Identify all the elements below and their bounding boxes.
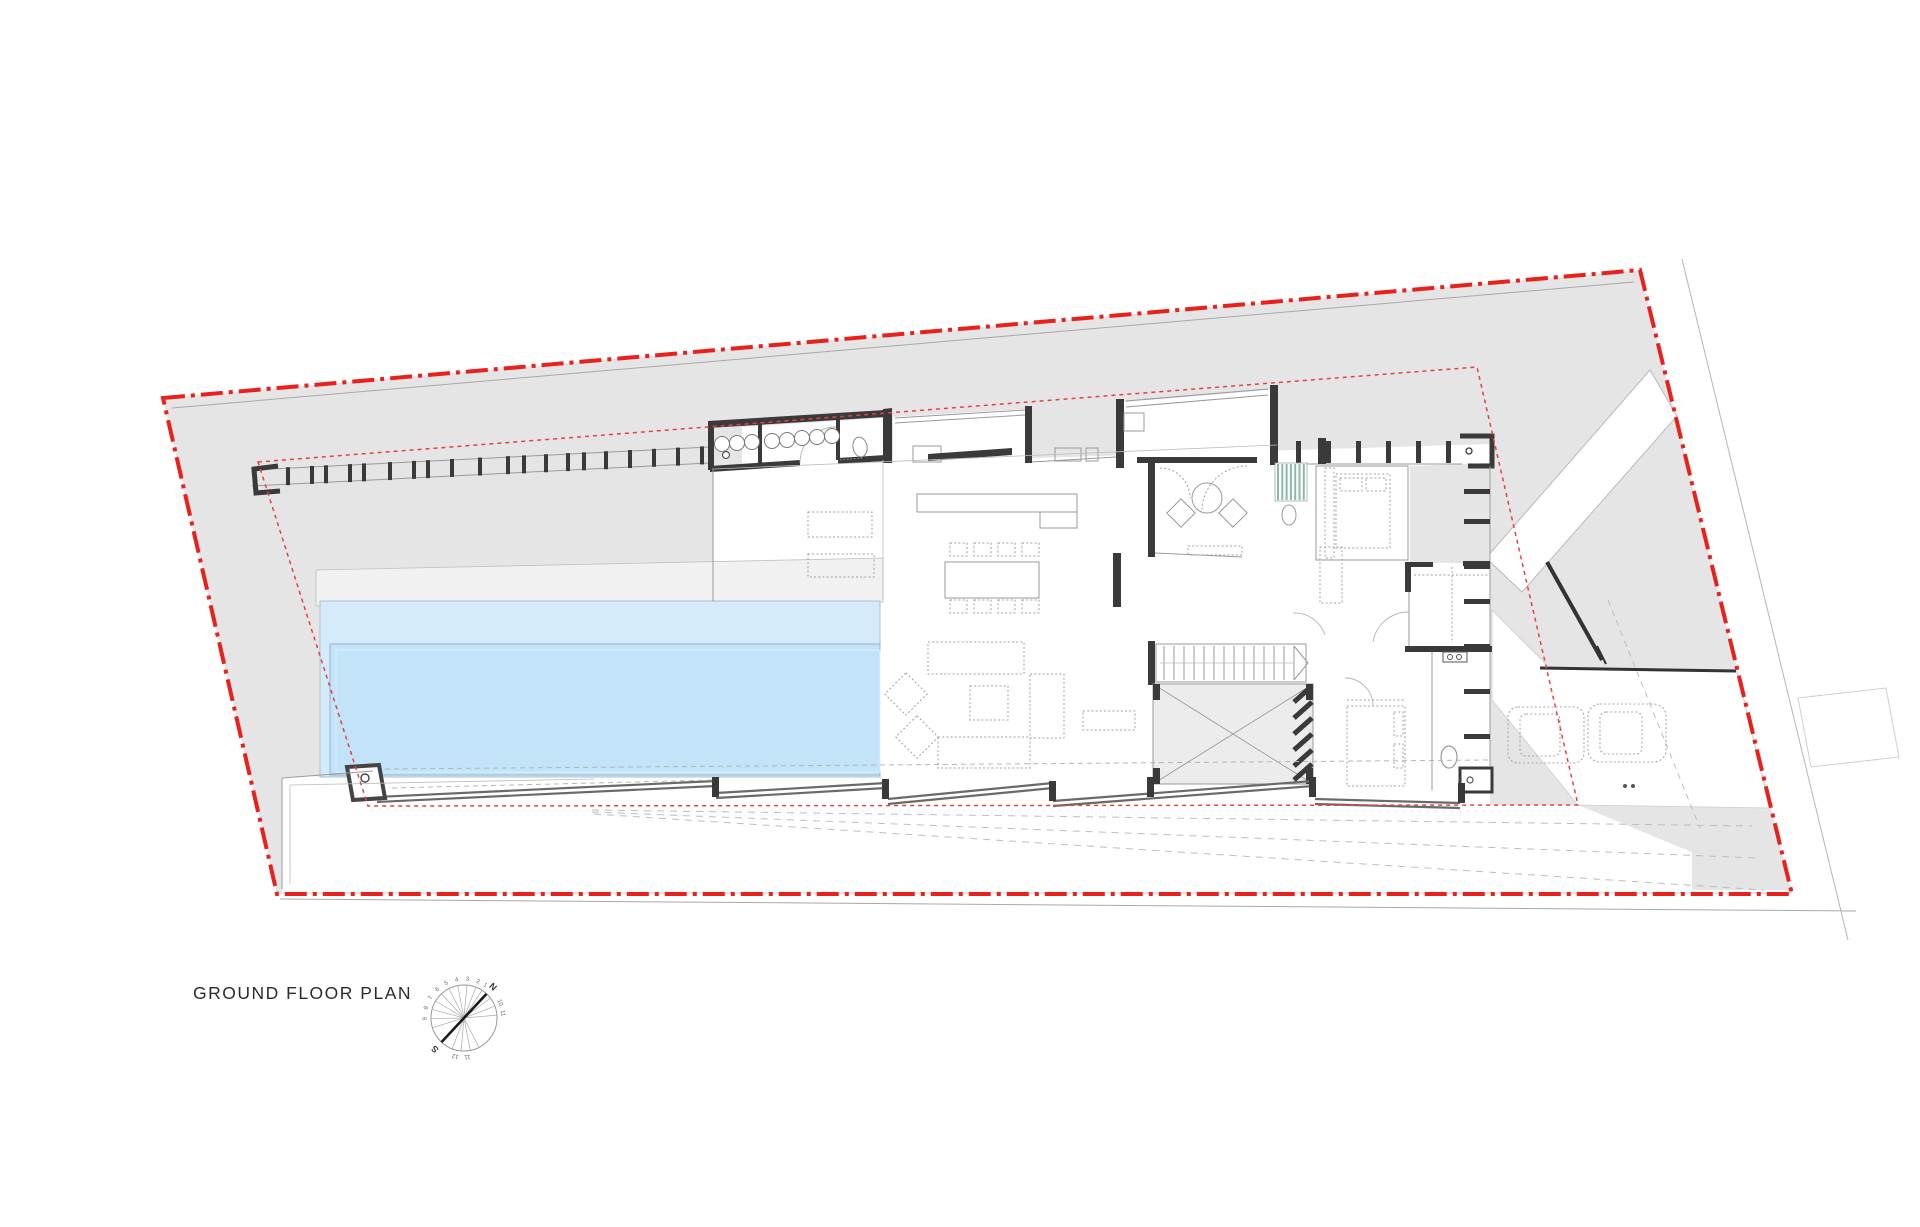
entry-fin [1386,441,1391,463]
facade-post-2 [882,779,889,799]
compass-spoke [431,1018,464,1019]
pool-main-basin [330,644,880,775]
neighbour-plot-outline [1798,688,1899,767]
fence-post [652,449,656,467]
fence-gate-pivot [723,452,730,459]
east-fin [1464,519,1490,524]
fence-post [676,448,680,466]
fence-post [522,455,526,473]
compass-spoke [458,986,464,1018]
service-circle-fixture [715,437,730,452]
plan-title: GROUND FLOOR PLAN [193,983,412,1003]
compass-hour-label: 8 [424,1005,431,1010]
compass-spoke [461,1018,464,1051]
compass-hour-label: 4 [454,977,459,984]
compass-spoke [441,994,464,1018]
hall-post [1405,562,1411,592]
kitchen-east-post [1025,406,1032,463]
compass-cardinal-label: N [487,981,499,993]
fence-post [544,454,548,472]
compass-hour-label: 6 [435,986,442,993]
pool-corner-wall [347,765,385,800]
fence-post [582,452,586,470]
compass-hour-label: 2 [475,979,481,986]
corridor-wall [1113,553,1121,607]
gate-dot-1 [1623,784,1627,788]
east-fin [1464,689,1490,694]
green-wall [1275,463,1307,501]
compass-spoke [464,1018,479,1047]
service-circle-fixture [765,434,780,449]
compass-hour-label: 11 [463,1053,470,1060]
gate-dot-2 [1631,784,1635,788]
service-circle-fixture [780,433,795,448]
fence-post [388,462,392,480]
entry-fin [1416,441,1421,463]
courtyard-lintel-1 [1408,562,1433,567]
fence-post [628,450,632,468]
swimming-pool [320,601,880,777]
entry-fin [1296,441,1301,463]
compass-spoke [464,1015,497,1018]
service-circle-fixture [745,435,760,450]
master-north-wall [1405,646,1492,652]
service-circle-fixture [810,430,825,445]
east-fin [1464,599,1490,604]
compass-hour-label: 9 [423,1016,429,1020]
compass-hour-label: 10 [495,999,503,1008]
fence-post [412,461,416,479]
service-circle-fixture [795,431,810,446]
compass-hour-label: 12 [451,1052,459,1059]
entry-fin [1326,441,1331,463]
entry-door-pivot [1466,448,1472,454]
study-west-wall [1148,463,1155,557]
stair-west-wall [1148,641,1155,685]
master-toilet [1441,746,1457,768]
strip-east-wall [883,408,892,463]
void-post-nw [1153,684,1160,700]
fence-post [362,463,366,481]
entry-fin [1356,441,1361,463]
fence-post [478,458,482,476]
void-post-sw [1153,768,1160,784]
compass-spoke [464,985,467,1018]
atrium-west-wall [1116,399,1124,468]
fence-post [426,460,430,478]
service-circle-fixture [730,436,745,451]
fence-post [566,453,570,471]
facade-post-1 [712,777,719,797]
bedroom-ne-post [1318,438,1326,464]
floor-plan-sheet: GROUND FLOOR PLAN NS12345678910111211 [0,0,1920,1227]
fence-post [604,451,608,469]
staircase [1148,641,1308,685]
compass-cardinal-label: S [429,1043,440,1054]
fence-post [310,466,314,484]
strip-west-wall [708,421,714,470]
fence-post [450,459,454,477]
facade-post-3 [1049,781,1056,801]
fence-post [700,446,704,464]
study-north-wall [1137,457,1257,463]
facade-post-4 [1147,777,1154,797]
compass-hour-label: 3 [465,977,470,983]
facade-post-5 [1309,777,1316,797]
compass-hour-label: 11 [499,1010,506,1018]
service-circle-fixture [825,429,840,444]
east-fin [1464,489,1490,494]
compass-rose: NS12345678910111211 [423,977,506,1060]
east-courtyard [1410,463,1490,563]
compass-spoke [432,1009,464,1018]
facade-post-6 [1458,783,1465,803]
void-skylight [1153,684,1313,784]
atrium-east-wall [1270,385,1278,465]
fence-post [348,464,352,482]
master-basin [1443,652,1467,662]
outdoor-shower-head [361,774,369,782]
neighbour-line-bottom [280,899,1856,911]
compass-hour-label: 7 [428,995,435,1002]
fence-post [324,465,328,483]
compass-spoke [464,1018,470,1050]
compass-hour-label: 5 [444,980,450,987]
east-fin [1464,734,1490,739]
courtyard-lintel-2 [1463,561,1490,566]
fence-post [506,456,510,474]
fence-post [286,467,290,485]
entry-fin [1446,441,1451,463]
